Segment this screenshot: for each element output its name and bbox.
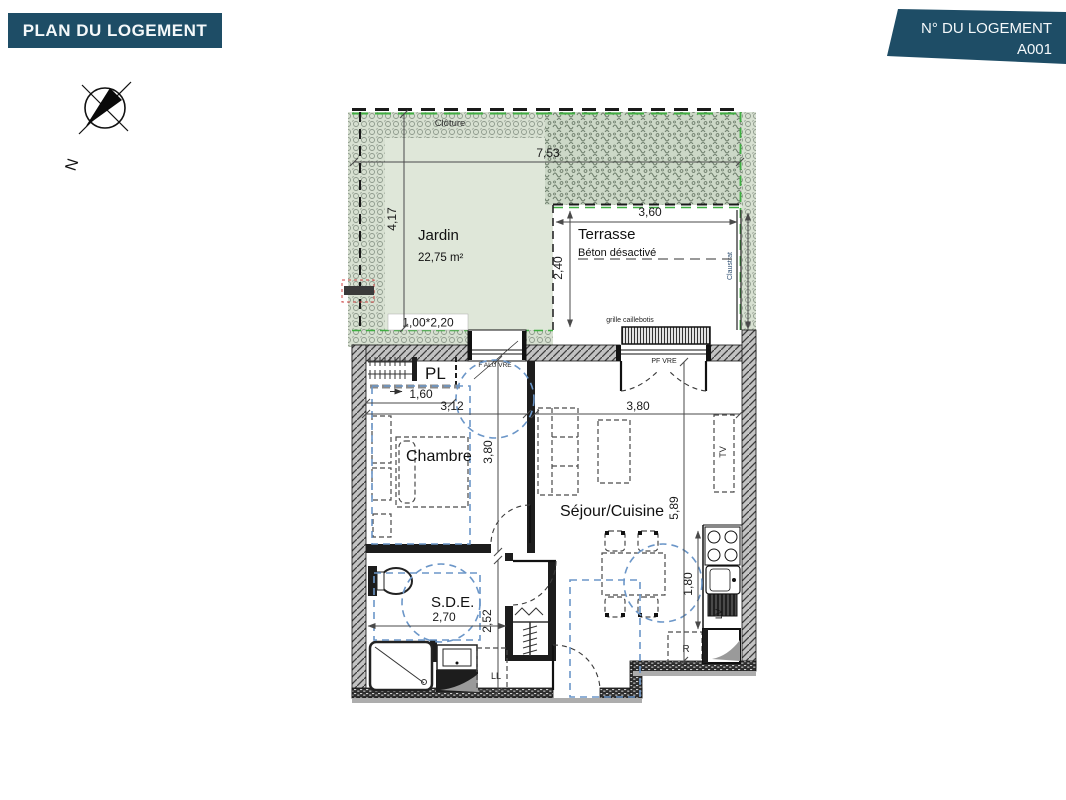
dim-terrasse-d: 2,40 [551,256,565,280]
floor-plan-page: PLAN DU LOGEMENT N° DU LOGEMENT A001 [0,0,1066,800]
tv-label: TV [718,446,728,458]
jardin-label: Jardin [418,227,459,244]
terrace-floor [553,205,740,330]
lv-label: LV [714,609,724,619]
dresser [373,514,391,537]
room-sejour-label: Séjour/Cuisine [560,503,664,520]
bed [372,416,468,537]
hall-closet [513,608,548,656]
room-chambre-label: Chambre [406,448,472,465]
table [598,420,630,483]
window-size-label: 1,00*2,20 [402,316,454,330]
terrasse-finish: Béton désactivé [578,247,656,259]
toilet [380,568,412,594]
dim-jardin-h: 4,17 [385,207,399,231]
nightstand [372,468,391,500]
gate-icon [344,286,374,295]
plan-svg: N Claustrat [0,0,1066,800]
room-sde-label: S.D.E. [431,594,474,611]
garden-shrubs [545,112,742,205]
dim-terrasse-w: 3,60 [638,205,662,219]
wardrobe [372,416,391,463]
dining-chairs [605,531,658,617]
compass-north-label: N [61,156,81,172]
dim-sejour-h: 5,89 [667,496,681,520]
fence-label: Clôture [435,118,466,129]
dim-chambre-d: 3,80 [481,440,495,464]
wc-tank [368,566,377,596]
kitchen: LV R [668,525,742,663]
dim-chambre-w: 3,12 [440,399,464,413]
claustra-label: Claustrat [727,252,734,280]
ll-label: LL [491,671,501,681]
chambre-door-arc [491,505,530,544]
fridge-label: R [682,644,689,655]
sofa [538,408,578,495]
terrasse-label: Terrasse [578,226,636,243]
sejour-french-door: PF VRE grille caillebotis [606,317,711,391]
washer-space [477,648,507,690]
sejour-window-label: PF VRE [651,358,677,365]
dining-table [602,553,665,595]
grate-label: grille caillebotis [606,317,654,324]
entrance-door-arc [553,645,600,690]
dim-sde-w: 2,70 [432,610,456,624]
compass: N [61,82,131,172]
grate [622,327,710,344]
dim-kitchen-l: 1,80 [681,572,695,596]
dim-jardin-w: 7,53 [536,146,560,160]
dim-pl-w: 1,60 [409,387,433,401]
room-pl-label: PL [425,364,446,383]
dim-sde-d: 2,52 [480,609,494,633]
dim-sejour-w: 3,80 [626,399,650,413]
jardin-area: 22,75 m² [418,252,464,264]
garden-hedge-left [348,112,385,330]
garden-hedge-right [742,112,756,330]
